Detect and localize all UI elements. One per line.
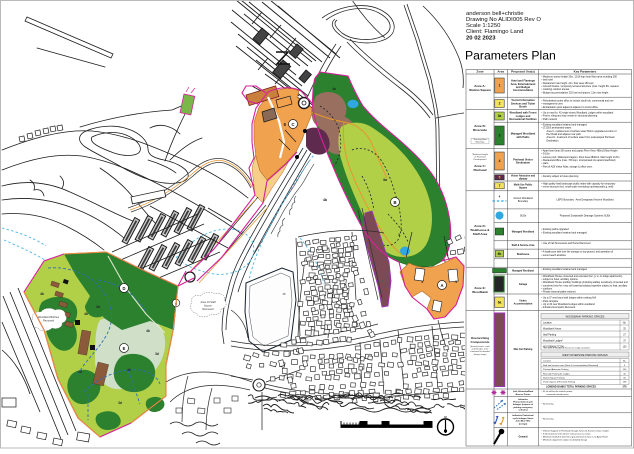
svg-text:• Woodbank House ancillary bu: • Woodbank House ancillary buildings (in… — [542, 281, 629, 284]
svg-text:4b: 4b — [84, 312, 88, 316]
svg-text:3: 3 — [398, 233, 400, 237]
svg-text:4b: 4b — [40, 292, 44, 296]
svg-text:LOMOND BANKS TOTAL PARKING SPA: LOMOND BANKS TOTAL PARKING SPACES — [546, 386, 596, 389]
svg-text:6a: 6a — [498, 300, 502, 304]
svg-text:Woodbank: Woodbank — [472, 290, 488, 294]
svg-text:• parts: • parts — [542, 162, 550, 165]
svg-text:• No fencing: • No fencing — [542, 404, 555, 406]
svg-text:anderson bell+christie: anderson bell+christie — [466, 11, 524, 17]
svg-text:No.: No. — [623, 361, 627, 363]
svg-text:3d: 3d — [78, 370, 82, 374]
svg-text:• converted into five / two s: • converted into five / two self caterin… — [542, 284, 629, 287]
svg-text:• Budget accommodation 202 lo: • Budget accommodation 202 low bed space… — [542, 91, 609, 94]
svg-text:C: C — [291, 122, 294, 127]
svg-text:20 02 2023: 20 02 2023 — [466, 36, 496, 42]
svg-text:Zone E:: Zone E: — [474, 286, 485, 290]
svg-text:45: 45 — [282, 292, 286, 296]
svg-text:• LT2019 ameliorated wates:: • LT2019 ameliorated wates: — [542, 127, 572, 130]
svg-text:5: 5 — [499, 176, 501, 180]
svg-text:Proposed Use(s): Proposed Use(s) — [511, 70, 535, 74]
svg-text:• management uses: • management uses — [542, 103, 564, 106]
svg-text:Square: Square — [519, 186, 528, 189]
svg-text:3a: 3a — [498, 114, 502, 118]
svg-text:• Park campsite: • Park campsite — [542, 300, 559, 303]
svg-text:Ancient Woodland: Ancient Woodland — [513, 197, 533, 200]
svg-text:linkages (coparse of: linkages (coparse of — [513, 404, 534, 406]
svg-text:• Maximum storey height 10m,: • Maximum storey height 10m, 12/18 sqm h… — [542, 76, 618, 79]
svg-text:(orange): (orange) — [519, 423, 528, 425]
svg-text:• Up to max No. 42 single sto: • Up to max No. 42 single storey Woodlan… — [542, 112, 614, 115]
svg-text:Parameters Plan: Parameters Plan — [465, 49, 556, 63]
svg-text:1: 1 — [421, 280, 423, 284]
svg-text:vehicles): vehicles) — [519, 410, 528, 412]
svg-text:• Existing paths upgraded: • Existing paths upgraded — [542, 228, 570, 231]
svg-text:Staff & Service Area: Staff & Service Area — [512, 244, 535, 247]
svg-text:4: 4 — [499, 159, 501, 163]
svg-text:• Existing woodland retained: • Existing woodland retained and managed — [542, 268, 588, 271]
svg-text:4b: 4b — [146, 329, 150, 333]
svg-text:Scale 1:1250: Scale 1:1250 — [466, 23, 501, 29]
svg-text:3d: 3d — [96, 305, 100, 309]
svg-text:Zone: Zone — [476, 70, 483, 74]
svg-text:Managed Woodland: Managed Woodland — [512, 231, 535, 234]
svg-text:• High quality hard landscape: • High quality hard landscape public rea… — [542, 183, 617, 186]
svg-text:• A boathouse with over the s: • A boathouse with over the storage on t… — [542, 251, 614, 254]
svg-text:Destination: Destination — [547, 139, 560, 142]
svg-text:Station Square: Station Square — [469, 88, 491, 92]
svg-text:A: A — [440, 283, 443, 288]
svg-text:• Existing woodland retained: • Existing woodland retained and managed — [542, 124, 588, 127]
svg-text:Garage: Garage — [519, 283, 528, 286]
svg-text:• Ground theatre / temporary: • Ground theatre / temporary terraced st… — [542, 85, 620, 88]
svg-text:Area 3 - replacement of surfac: Area 3 - replacement of surface water 50… — [547, 130, 617, 133]
svg-text:• Restaurant/office (max. 730: • Restaurant/office (max. 730 sqm, incor… — [542, 159, 616, 162]
svg-text:Pier Road and adjacent car par: Pier Road and adjacent car park — [547, 133, 582, 136]
svg-text:7: 7 — [499, 184, 501, 188]
svg-text:Overarching: Overarching — [471, 336, 489, 340]
svg-text:• Restaurant max height ~9m,: • Restaurant max height ~9m, floor area … — [542, 82, 594, 85]
svg-text:Multi-Use Public: Multi-Use Public — [514, 183, 533, 186]
svg-text:• marking) outdoor arenas: • marking) outdoor arenas — [542, 88, 570, 91]
svg-text:Proposed Sustainable Drainage: Proposed Sustainable Drainage Systems SU… — [560, 215, 611, 218]
svg-text:Components: Components — [471, 340, 490, 344]
svg-text:270: 270 — [623, 386, 628, 389]
svg-text:Zone B:: Zone B: — [474, 124, 486, 128]
svg-text:B: B — [393, 200, 396, 205]
svg-text:• Forms, siting and may remai: • Forms, siting and may remain in struct… — [542, 115, 598, 118]
svg-text:3: 3 — [499, 134, 501, 138]
svg-text:• Refurbished tourist office: • Refurbished tourist office to include … — [542, 100, 615, 103]
svg-text:• 9-10m: • 9-10m — [542, 153, 550, 156]
svg-text:Staff Area: Staff Area — [473, 232, 488, 236]
svg-text:3d: 3d — [155, 352, 159, 356]
svg-text:1: 1 — [455, 280, 457, 284]
svg-text:• Apart hotel (max 60 rooms a: • Apart hotel (max 60 rooms and capita; … — [542, 150, 618, 153]
svg-text:D: D — [122, 286, 125, 291]
svg-text:4a: 4a — [332, 87, 336, 91]
svg-text:• bed hotel: • bed hotel — [542, 79, 554, 82]
svg-text:Visitor Attraction and: Visitor Attraction and — [511, 175, 536, 178]
svg-text:Area: Area — [497, 70, 504, 74]
svg-text:• Up to 5* new found with lod: • Up to 5* new found with lodges within … — [542, 297, 597, 300]
svg-text:Riverside: Riverside — [473, 128, 487, 132]
svg-text:• curtilons.: • curtilons. — [542, 287, 553, 290]
svg-text:• Infrastructure/sports Remov: • Infrastructure/sports Removed — [542, 306, 576, 309]
svg-text:Pierhead: Pierhead — [473, 168, 486, 172]
svg-text:• Up to 32 new Woodland Lodge: • Up to 32 new Woodland Lodges within wo… — [542, 303, 596, 306]
svg-text:• some beach activities: • some beach activities — [542, 254, 567, 257]
svg-text:LEPO Boundary - Area Designate: LEPO Boundary - Area Designated Ancient … — [557, 199, 615, 202]
svg-text:• Leisure pool / Watersport l: • Leisure pool / Watersport lagoon. Floo… — [542, 156, 620, 159]
svg-text:4b: 4b — [127, 368, 131, 372]
svg-text:Zone C:: Zone C: — [474, 164, 486, 168]
svg-text:Zone D:: Zone D: — [474, 224, 486, 228]
svg-text:1: 1 — [499, 84, 501, 88]
svg-text:• event structure (incl. smal: • event structure (incl. small scale eve… — [542, 186, 614, 189]
svg-text:• Private external paths rest: • Private external paths restored — [542, 291, 577, 294]
svg-text:Accommodation: Accommodation — [514, 303, 533, 306]
svg-text:• Path network: • Path network — [542, 118, 558, 121]
svg-text:Visitor: Visitor — [519, 300, 526, 303]
svg-text:slipway: slipway — [519, 178, 528, 181]
svg-text:Managed Woodland: Managed Woodland — [512, 270, 534, 272]
svg-text:General: General — [519, 435, 528, 438]
svg-text:3d: 3d — [118, 401, 122, 405]
svg-text:Area 21 - treatment of surface: Area 21 - treatment of surface water fro… — [547, 136, 615, 139]
svg-text:Zone A:: Zone A: — [474, 84, 485, 88]
svg-text:Boundary: Boundary — [518, 200, 529, 203]
svg-text:Client: Flamingo Land: Client: Flamingo Land — [466, 29, 523, 35]
svg-text:• Woodbank House converted an: • Woodbank House converted and extended … — [542, 275, 623, 278]
svg-text:• Part of ALB Visitor Atlas,: • Part of ALB Visitor Atlas, storage & o… — [542, 165, 593, 168]
svg-text:Woodbank House: Woodbank House — [543, 329, 562, 331]
svg-text:No.: No. — [623, 323, 627, 325]
svg-text:parking emergency: parking emergency — [513, 407, 533, 409]
svg-text:SUDs: SUDs — [520, 215, 527, 218]
svg-text:• Embarkation point adjacent: • Embarkation point adjacent adjacent to… — [542, 106, 599, 109]
svg-text:Woodbank Lodges*: Woodbank Lodges* — [543, 341, 563, 343]
svg-text:E: E — [123, 346, 126, 351]
svg-text:• No fencing: • No fencing — [542, 419, 555, 421]
svg-text:Drawing No ALIDI005 Rev O: Drawing No ALIDI005 Rev O — [466, 17, 541, 23]
svg-text:Boathouse: Boathouse — [517, 253, 530, 256]
svg-text:Max Car Parking: Max Car Parking — [514, 348, 533, 351]
svg-text:N: N — [444, 415, 446, 419]
svg-text:2: 2 — [499, 102, 501, 106]
svg-text:Boathouse &: Boathouse & — [470, 228, 490, 232]
svg-text:• Use of hall Successors and: • Use of hall Successors and Period Remo… — [542, 242, 592, 245]
svg-text:• Density subject to future p: • Density subject to future planning — [542, 175, 580, 178]
svg-text:6b: 6b — [498, 252, 502, 256]
svg-text:• Existing woodland retained: • Existing woodland retained and managed — [542, 231, 588, 234]
svg-text:Key Parameters: Key Parameters — [574, 70, 597, 74]
svg-text:• subject to hotel; ancillary: • subject to hotel; ancillary options. — [542, 278, 579, 281]
